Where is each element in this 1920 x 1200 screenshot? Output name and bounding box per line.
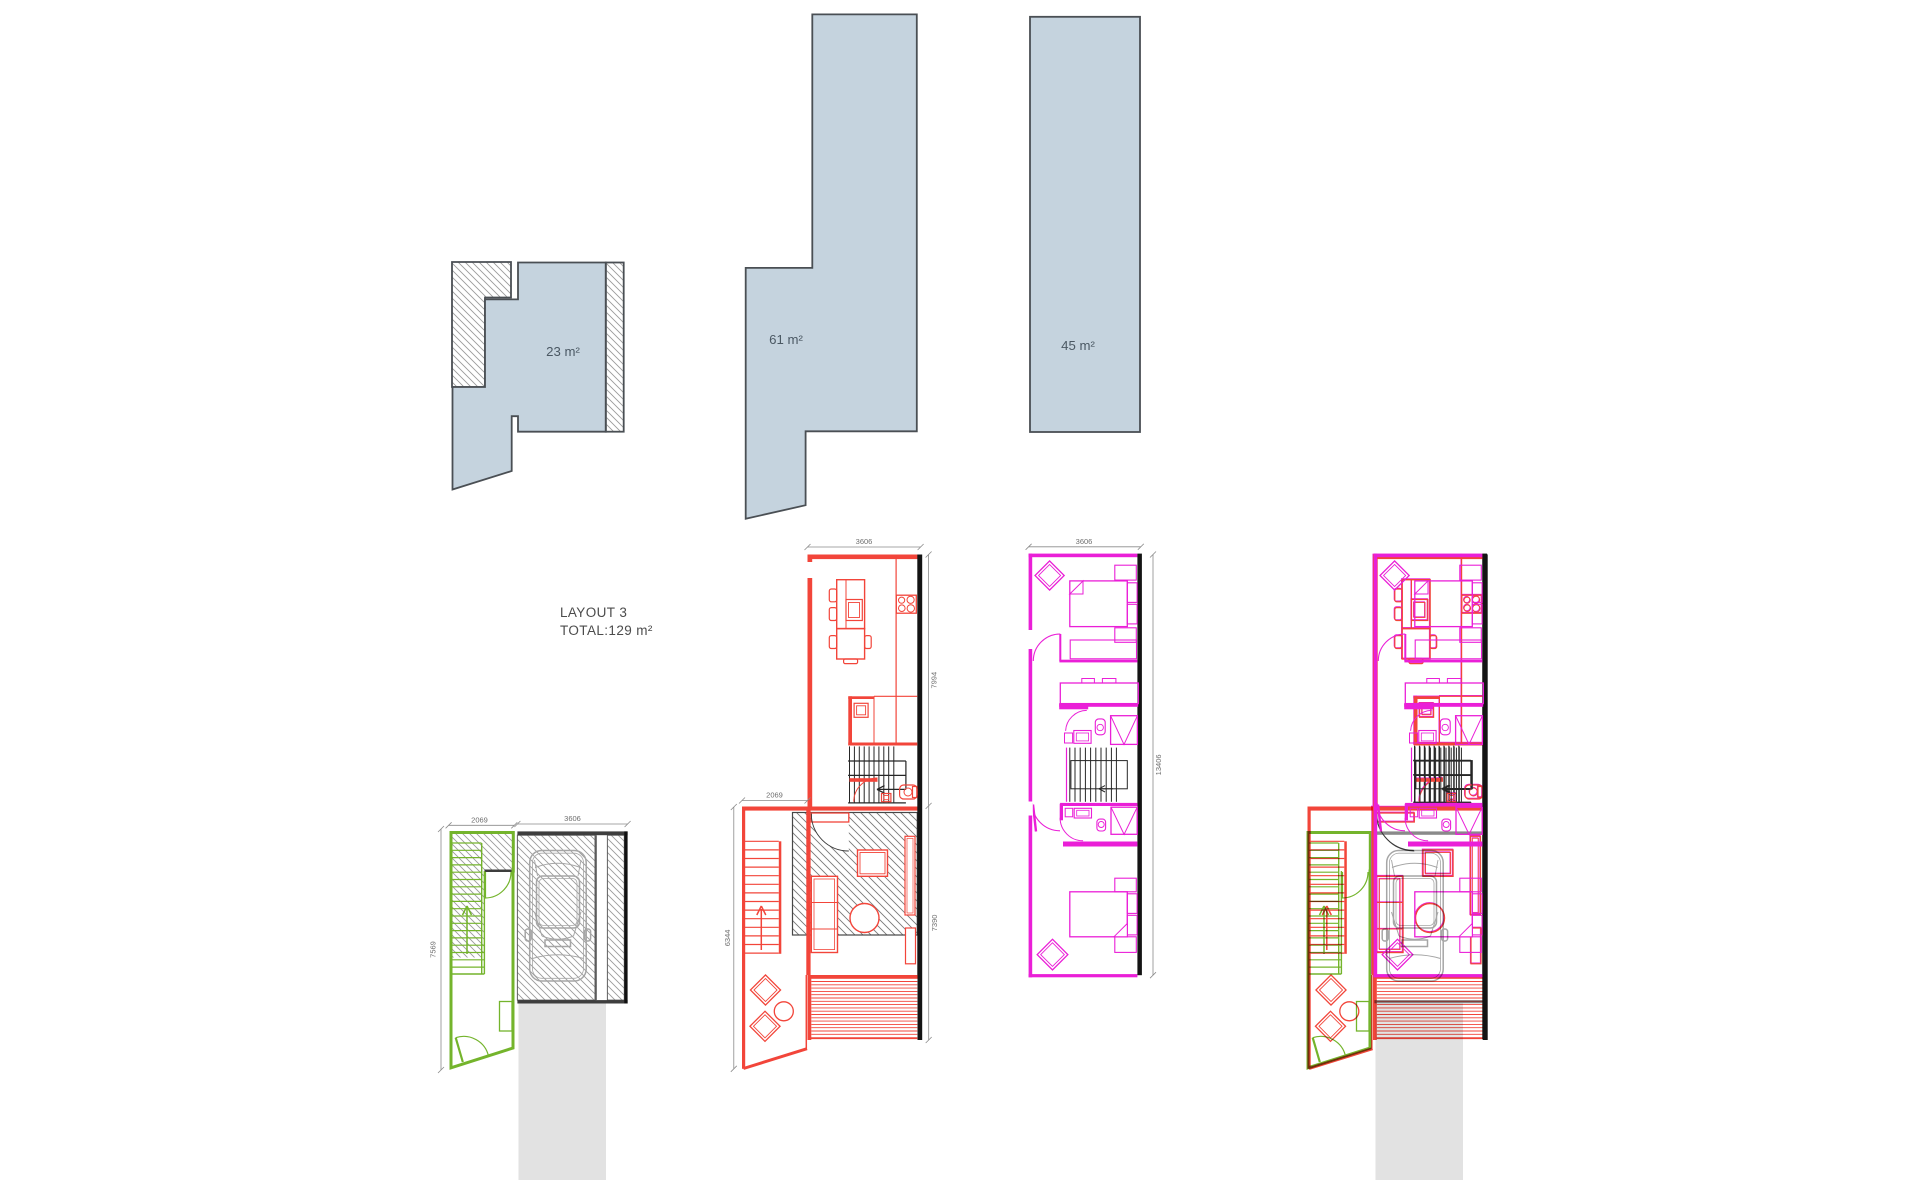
svg-text:2069: 2069 — [766, 791, 783, 800]
svg-text:3606: 3606 — [564, 814, 581, 823]
svg-text:7569: 7569 — [429, 941, 438, 958]
svg-text:7994: 7994 — [930, 672, 939, 689]
svg-text:3606: 3606 — [856, 537, 873, 546]
svg-text:3606: 3606 — [1076, 537, 1093, 546]
svg-text:45 m²: 45 m² — [1061, 338, 1095, 353]
svg-text:LAYOUT 3: LAYOUT 3 — [560, 605, 627, 620]
svg-text:6344: 6344 — [723, 930, 732, 947]
svg-text:TOTAL:129 m²: TOTAL:129 m² — [560, 623, 653, 638]
svg-text:23 m²: 23 m² — [546, 344, 580, 359]
svg-text:7390: 7390 — [930, 915, 939, 932]
svg-text:61 m²: 61 m² — [769, 332, 803, 347]
svg-text:13406: 13406 — [1154, 754, 1163, 775]
svg-text:2069: 2069 — [471, 816, 488, 825]
